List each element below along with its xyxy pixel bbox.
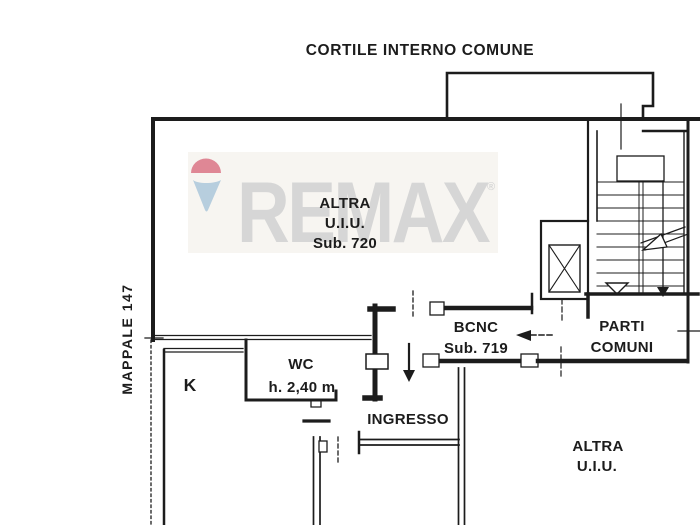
stair-stringer: [639, 181, 643, 294]
wc-height-label: h. 2,40 m: [269, 379, 336, 396]
floorplan-page: REMAX ®: [0, 0, 700, 525]
elevator-x-icon: [549, 245, 580, 292]
door-jamb-top-left: [430, 302, 444, 315]
ingresso-wall-right: [459, 368, 465, 525]
wc-door-notch: [311, 401, 321, 407]
room720-wall-bottom: [153, 336, 371, 340]
parti-comuni-label-line2: COMUNI: [591, 339, 654, 356]
altra-right-label-line2: U.I.U.: [577, 458, 617, 475]
courtyard-label: CORTILE INTERNO COMUNE: [306, 42, 534, 59]
bcnc-label-line2: Sub. 719: [444, 340, 508, 357]
entrance-label: INGRESSO: [367, 411, 449, 428]
center-wall-assembly: [365, 306, 393, 399]
registered-mark: ®: [487, 181, 495, 193]
floor-plan: REMAX ®: [0, 0, 700, 525]
left-arrow-icon: [516, 330, 531, 341]
center-wall-pilaster: [366, 354, 388, 369]
wc-label: WC: [288, 356, 314, 373]
balcony-bump-wall: [447, 73, 653, 119]
parti-comuni-label-line1: PARTI: [599, 318, 644, 335]
parcel-label: MAPPALE 147: [119, 283, 135, 394]
kitchen-label: K: [184, 375, 197, 395]
bcnc-label-line1: BCNC: [454, 319, 499, 336]
stair-landing: [617, 156, 664, 181]
ingresso-wall-bottom: [359, 440, 459, 446]
door-jamb-bottom-right: [521, 354, 538, 367]
k-room-wall-top: [164, 349, 243, 353]
unit720-label-line1: ALTRA: [319, 195, 370, 212]
elevator: [541, 221, 588, 378]
elevator-axis-dashed: [561, 299, 562, 378]
unit720-label-line3: Sub. 720: [313, 235, 377, 252]
staircase: [586, 104, 698, 317]
altra-right-label-line1: ALTRA: [572, 438, 623, 455]
down-arrow-icon: [403, 370, 415, 382]
unit720-label-line2: U.I.U.: [325, 215, 365, 232]
elevator-shaft: [541, 221, 588, 299]
lower-left-wall-notch: [319, 441, 327, 452]
stair-treads: [597, 182, 684, 286]
door-jamb-bottom-left: [423, 354, 439, 367]
